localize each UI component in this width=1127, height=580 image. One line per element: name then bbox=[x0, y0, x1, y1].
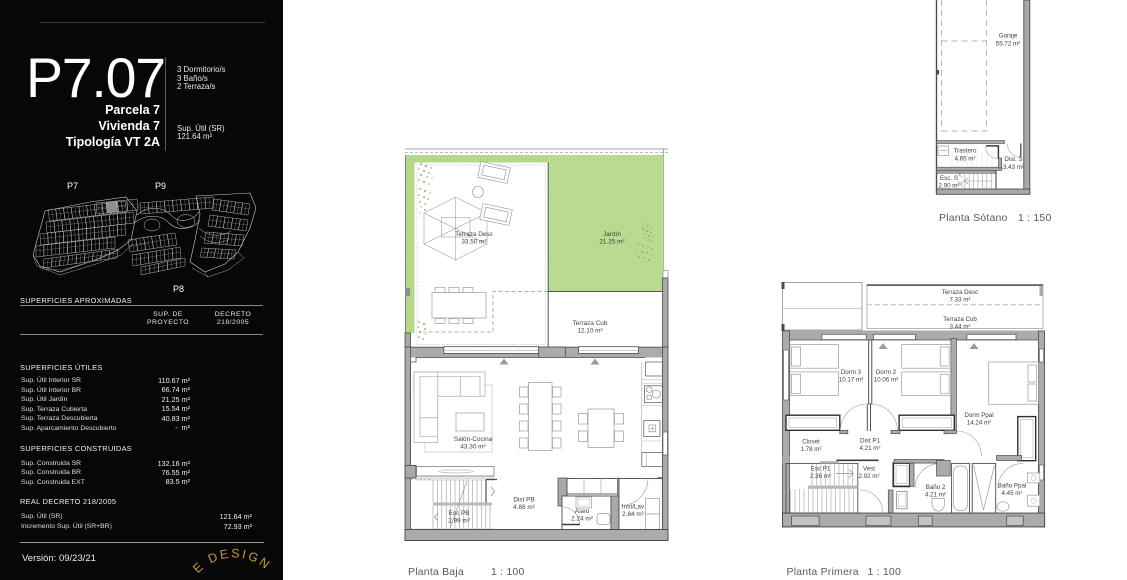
svg-text:Vest: Vest bbox=[863, 466, 875, 473]
svg-text:2.36 m²: 2.36 m² bbox=[810, 473, 831, 480]
svg-text:14.24 m²: 14.24 m² bbox=[967, 420, 991, 427]
svg-text:Inst/Lav: Inst/Lav bbox=[622, 504, 645, 511]
svg-text:4.21 m²: 4.21 m² bbox=[925, 492, 946, 499]
svg-text:12.10 m²: 12.10 m² bbox=[577, 328, 602, 335]
svg-text:43.30 m²: 43.30 m² bbox=[460, 444, 485, 451]
svg-text:Dorm 2: Dorm 2 bbox=[876, 369, 897, 376]
svg-text:Garaje: Garaje bbox=[999, 33, 1018, 40]
svg-text:Esc. S: Esc. S bbox=[940, 175, 958, 182]
svg-text:Closet: Closet bbox=[802, 439, 820, 446]
svg-text:Jardín: Jardín bbox=[603, 231, 621, 238]
svg-text:4.45 m²: 4.45 m² bbox=[1002, 490, 1023, 497]
svg-text:4.21 m²: 4.21 m² bbox=[860, 445, 881, 452]
svg-text:Baño 2: Baño 2 bbox=[926, 484, 946, 491]
svg-text:E DESIGN: E DESIGN bbox=[190, 546, 274, 576]
svg-text:33.50 m²: 33.50 m² bbox=[461, 239, 486, 246]
svg-text:Trastero: Trastero bbox=[954, 147, 977, 154]
svg-text:2.84 m²: 2.84 m² bbox=[622, 511, 644, 518]
svg-text:21.25 m²: 21.25 m² bbox=[599, 239, 624, 246]
svg-text:2.24 m²: 2.24 m² bbox=[571, 516, 593, 523]
svg-text:Dist PB: Dist PB bbox=[513, 497, 534, 504]
svg-text:10.17 m²: 10.17 m² bbox=[839, 377, 863, 384]
svg-text:4.88 m²: 4.88 m² bbox=[513, 504, 535, 511]
svg-text:Baño Ppal: Baño Ppal bbox=[998, 483, 1027, 490]
svg-text:3.44 m²: 3.44 m² bbox=[950, 324, 971, 331]
svg-text:Aseo: Aseo bbox=[575, 508, 590, 515]
svg-text:Terraza Cub: Terraza Cub bbox=[573, 320, 608, 327]
svg-text:Dorm Ppal: Dorm Ppal bbox=[964, 412, 993, 419]
svg-text:Dist. S: Dist. S bbox=[1004, 156, 1022, 163]
svg-text:Esc PB: Esc PB bbox=[449, 510, 470, 517]
svg-text:Dist P1: Dist P1 bbox=[860, 438, 881, 445]
svg-text:Terraza Cub: Terraza Cub bbox=[943, 316, 977, 323]
svg-text:Dorm 3: Dorm 3 bbox=[841, 369, 862, 376]
svg-text:10.06 m²: 10.06 m² bbox=[874, 377, 898, 384]
svg-text:2.99 m²: 2.99 m² bbox=[448, 518, 470, 525]
svg-text:3.43 m²: 3.43 m² bbox=[1003, 164, 1024, 171]
svg-text:55.72 m²: 55.72 m² bbox=[996, 41, 1020, 48]
svg-text:Terraza Desc: Terraza Desc bbox=[455, 231, 493, 238]
svg-text:2.92 m²: 2.92 m² bbox=[859, 473, 880, 480]
svg-text:1.78 m²: 1.78 m² bbox=[801, 446, 822, 453]
svg-text:7.33 m²: 7.33 m² bbox=[950, 297, 971, 304]
svg-text:Salón-Cocina: Salón-Cocina bbox=[454, 436, 493, 443]
svg-text:4.65 m²: 4.65 m² bbox=[955, 155, 976, 162]
svg-text:Terraza Desc: Terraza Desc bbox=[942, 289, 978, 296]
svg-text:Esc P1: Esc P1 bbox=[811, 466, 831, 473]
